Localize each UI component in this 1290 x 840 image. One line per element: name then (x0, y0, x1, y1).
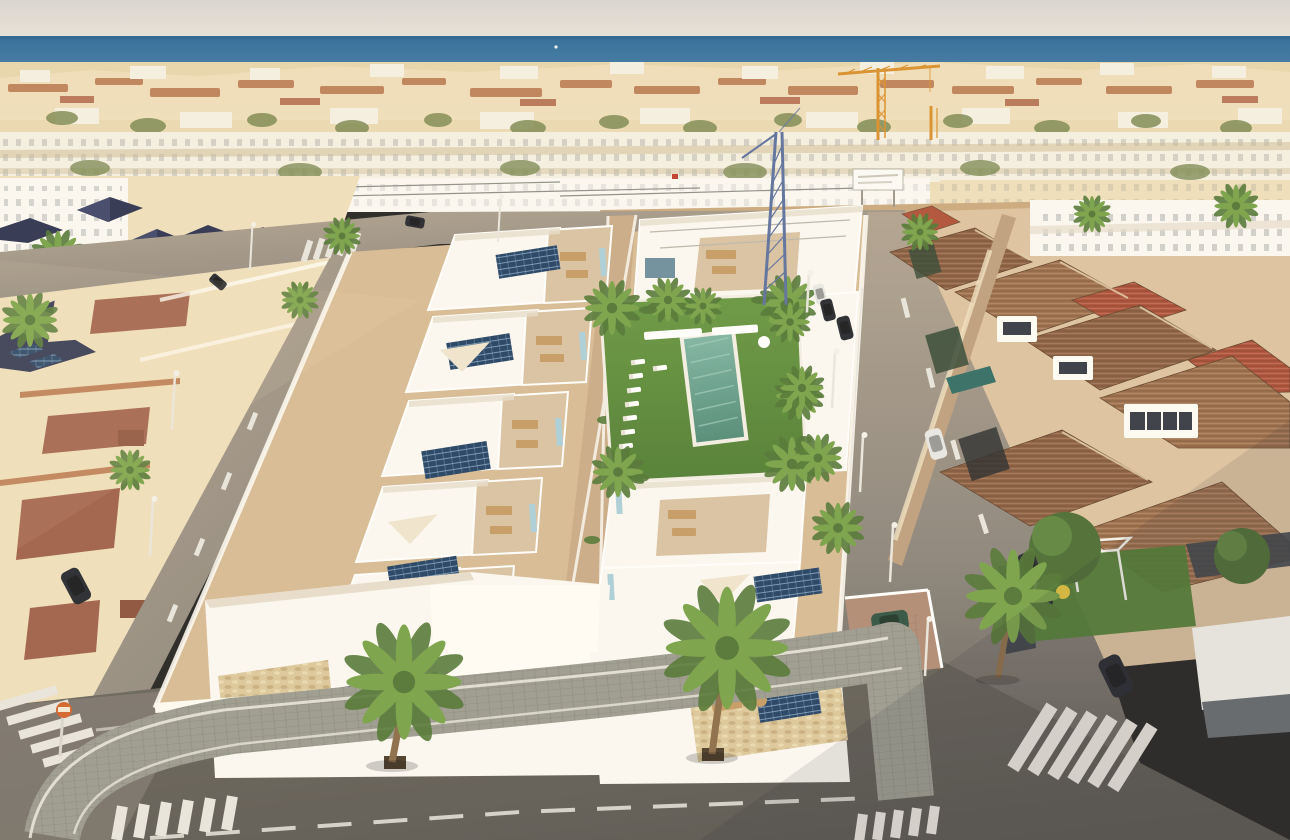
aerial-photo-stage (0, 0, 1290, 840)
horizon-line (0, 36, 1290, 39)
red-flag (672, 174, 678, 179)
blue-pergola-box (645, 258, 675, 278)
distant-boat (554, 45, 557, 48)
aerial-scene (0, 0, 1290, 840)
sky (0, 0, 1290, 42)
mid-white-townhouses (0, 132, 1290, 182)
storage-box (118, 430, 144, 446)
